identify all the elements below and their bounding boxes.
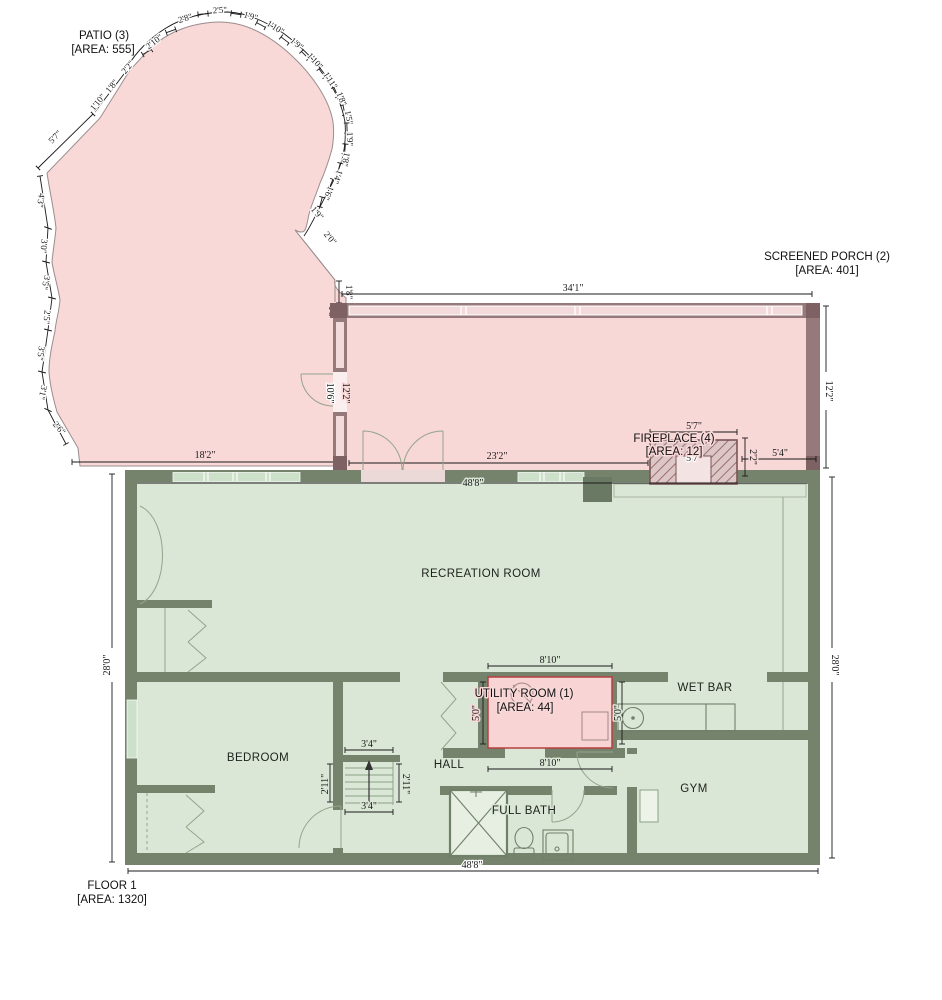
floor-dim-bottom: 48'8" — [462, 860, 483, 871]
patio-dim-bottom: 18'2" — [195, 450, 216, 461]
french-door-opening — [361, 470, 445, 483]
porch-dim-top: 34'1" — [563, 283, 584, 294]
patio-dim: 3'1" — [36, 385, 49, 401]
gym-label: GYM — [680, 783, 707, 795]
bedroom-window — [127, 700, 137, 758]
patio-dim: 1'10" — [265, 18, 287, 36]
wall-gym-stub — [627, 748, 637, 754]
porch-left-window-2 — [336, 416, 344, 458]
floor-plan-canvas: PATIO (3) [AREA: 555] 5'7" 1'10" 1'8" 2'… — [0, 0, 942, 1000]
porch-name: SCREENED PORCH (2) — [764, 251, 890, 263]
stairs-dim-left: 2'11" — [320, 774, 331, 795]
wall-rec-wetbar — [767, 672, 808, 682]
wall-closet1-top — [137, 600, 212, 608]
patio-name: PATIO (3) — [79, 30, 129, 42]
fireplace-area: [AREA: 12] — [646, 446, 703, 458]
porch-dim-right: 12'2" — [823, 381, 834, 402]
recreation-room-label: RECREATION ROOM — [421, 568, 541, 580]
patio-area: [AREA: 555] — [71, 44, 134, 56]
rec-room-window-band-2 — [518, 473, 584, 482]
floor-dim-right: 28'0" — [829, 655, 840, 676]
patio-dim: 3'0" — [38, 239, 49, 254]
screened-porch-region: SCREENED PORCH (2) [AREA: 401] 34'1" 12'… — [301, 251, 890, 470]
full-bath-label: FULL BATH — [492, 805, 556, 817]
wall-closet2-top — [137, 785, 215, 793]
patio-region: PATIO (3) [AREA: 555] 5'7" 1'10" 1'8" 2'… — [35, 5, 355, 466]
floor-area: [AREA: 1320] — [77, 894, 147, 906]
porch-area: [AREA: 401] — [795, 265, 858, 277]
stairs-dim-bottom: 3'4" — [361, 801, 377, 812]
floor-plan: PATIO (3) [AREA: 555] 5'7" 1'10" 1'8" 2'… — [0, 0, 942, 1000]
utility-dim-bottom: 8'10" — [540, 758, 561, 769]
utility-room-label: UTILITY ROOM (1) — [475, 688, 574, 700]
patio-dim: 2'5" — [212, 5, 227, 16]
patio-dim: 1'8" — [344, 285, 354, 300]
patio-dim: 1'9" — [345, 132, 355, 147]
utility-room-area: [AREA: 44] — [497, 702, 554, 714]
utility-dim-right: 5'0" — [613, 705, 624, 721]
stairs-dim-right: 2'11" — [400, 774, 411, 795]
patio-dim: 1'11" — [321, 70, 340, 91]
wall-bath-top-r — [584, 786, 617, 795]
fireplace-name: FIREPLACE (4) — [633, 433, 714, 445]
patio-dim: 3'5" — [35, 346, 47, 362]
porch-dim-bottom: 23'2" — [487, 451, 508, 462]
porch-right-wall — [806, 303, 820, 470]
patio-dim: 3'5" — [39, 275, 52, 291]
wall-bath-right — [627, 787, 637, 853]
wall-stairs-top — [343, 755, 400, 762]
patio-dim: 4'3" — [35, 193, 47, 209]
porch-dim-left-wall: 12'2" — [340, 383, 351, 404]
stairs-dim-top: 3'4" — [361, 739, 377, 750]
fireplace-dim-width: 5'7" — [686, 421, 702, 432]
floor-dim-left: 28'0" — [102, 655, 113, 676]
patio-dim: 1'9" — [243, 9, 260, 23]
wall-bedroom-door-stub — [333, 848, 343, 853]
floor-1-region — [125, 431, 820, 865]
porch-dim-door: 10'6" — [324, 383, 335, 404]
chimney-pillar — [583, 477, 612, 502]
fireplace-dim-depth: 2'2" — [747, 449, 758, 465]
bedroom-label: BEDROOM — [227, 752, 289, 764]
gym-closet — [640, 790, 658, 822]
wall-rec-bedroom — [137, 672, 400, 682]
patio-dim: 1'10" — [88, 91, 108, 112]
wet-bar-label: WET BAR — [678, 682, 733, 694]
hall-label: HALL — [434, 759, 465, 771]
patio-dim: 1'8" — [334, 90, 349, 107]
wall-bedroom-stairs — [333, 682, 343, 810]
utility-dim-top: 8'10" — [540, 655, 561, 666]
patio-dim: 5'7" — [46, 128, 63, 145]
floor-name: FLOOR 1 — [87, 880, 136, 892]
fireplace-dim-side: 5'4" — [772, 448, 788, 459]
wall-utility-bottom-r — [545, 748, 625, 758]
patio-dim: 2'5" — [41, 310, 52, 325]
patio-dim: 2'8" — [177, 11, 194, 25]
patio-dim: 2'0" — [322, 229, 339, 247]
floor-dim-top: 48'8" — [463, 478, 484, 489]
utility-dim-left: 5'0" — [471, 705, 482, 721]
porch-left-window-1 — [336, 322, 344, 368]
patio-dim: 1'10" — [305, 51, 325, 72]
patio-outline — [47, 22, 346, 466]
wall-utility-bottom-l — [443, 748, 505, 758]
